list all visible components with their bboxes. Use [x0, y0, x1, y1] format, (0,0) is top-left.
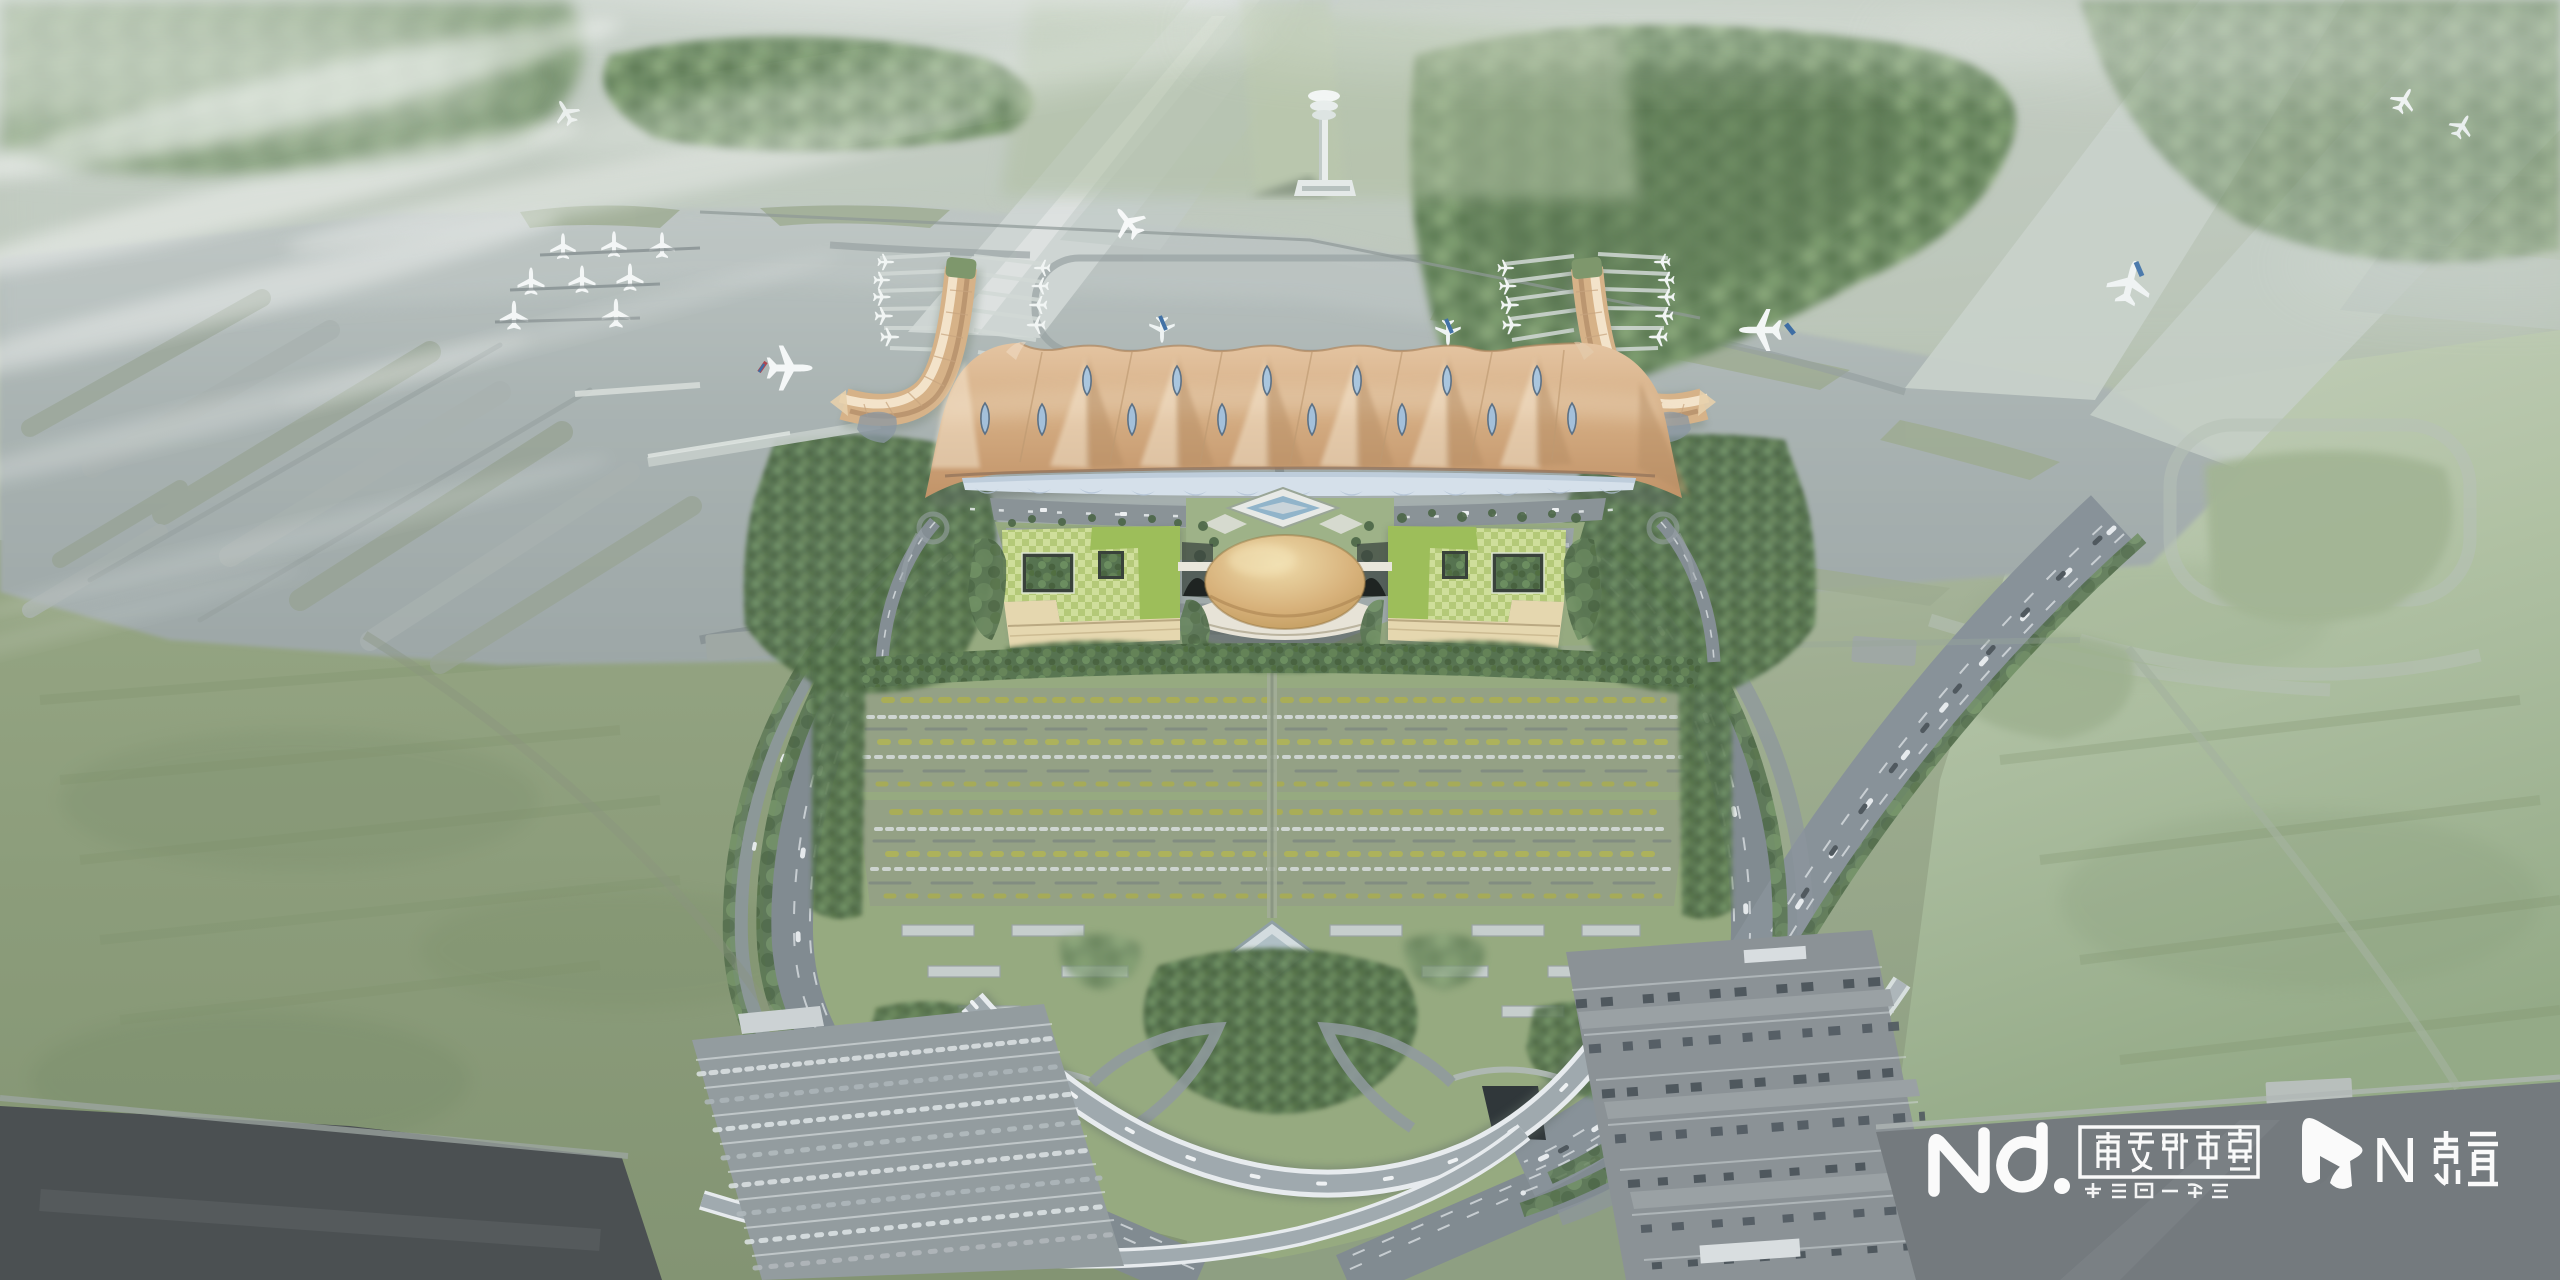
svg-text:N: N [2372, 1124, 2418, 1196]
